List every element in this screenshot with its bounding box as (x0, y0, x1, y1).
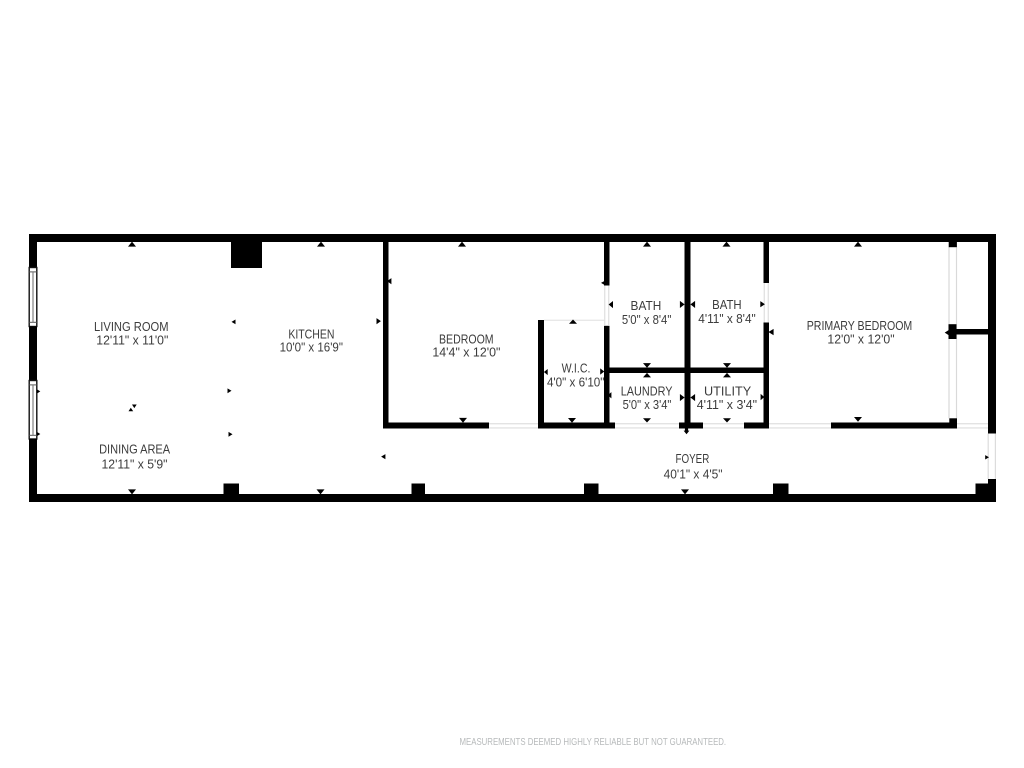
svg-text:4'11" x 8'4": 4'11" x 8'4" (698, 312, 756, 326)
svg-text:UTILITY: UTILITY (704, 384, 752, 398)
svg-text:12'11" x 5'9": 12'11" x 5'9" (102, 458, 168, 472)
svg-text:BATH: BATH (631, 299, 662, 313)
svg-text:W.I.C.: W.I.C. (562, 362, 591, 376)
svg-text:FOYER: FOYER (676, 452, 710, 466)
svg-text:LIVING ROOM: LIVING ROOM (94, 320, 169, 334)
svg-text:12'0" x 12'0": 12'0" x 12'0" (827, 333, 894, 347)
svg-text:BATH: BATH (712, 298, 742, 312)
svg-text:5'0" x 8'4": 5'0" x 8'4" (622, 313, 672, 327)
svg-text:LAUNDRY: LAUNDRY (621, 384, 673, 398)
svg-text:40'1" x 4'5": 40'1" x 4'5" (664, 467, 723, 481)
svg-text:MEASUREMENTS DEEMED HIGHLY REL: MEASUREMENTS DEEMED HIGHLY RELIABLE BUT … (460, 737, 727, 748)
svg-text:DINING AREA: DINING AREA (99, 442, 171, 456)
svg-text:BEDROOM: BEDROOM (439, 332, 494, 346)
svg-text:14'4" x 12'0": 14'4" x 12'0" (432, 346, 500, 360)
svg-text:4'11" x 3'4": 4'11" x 3'4" (697, 398, 757, 412)
svg-text:10'0" x 16'9": 10'0" x 16'9" (280, 340, 343, 354)
svg-text:KITCHEN: KITCHEN (288, 327, 334, 341)
svg-text:4'0" x 6'10": 4'0" x 6'10" (547, 375, 605, 389)
svg-text:5'0" x 3'4": 5'0" x 3'4" (623, 398, 672, 412)
svg-text:12'11" x 11'0": 12'11" x 11'0" (96, 333, 168, 347)
svg-text:PRIMARY BEDROOM: PRIMARY BEDROOM (807, 319, 913, 333)
